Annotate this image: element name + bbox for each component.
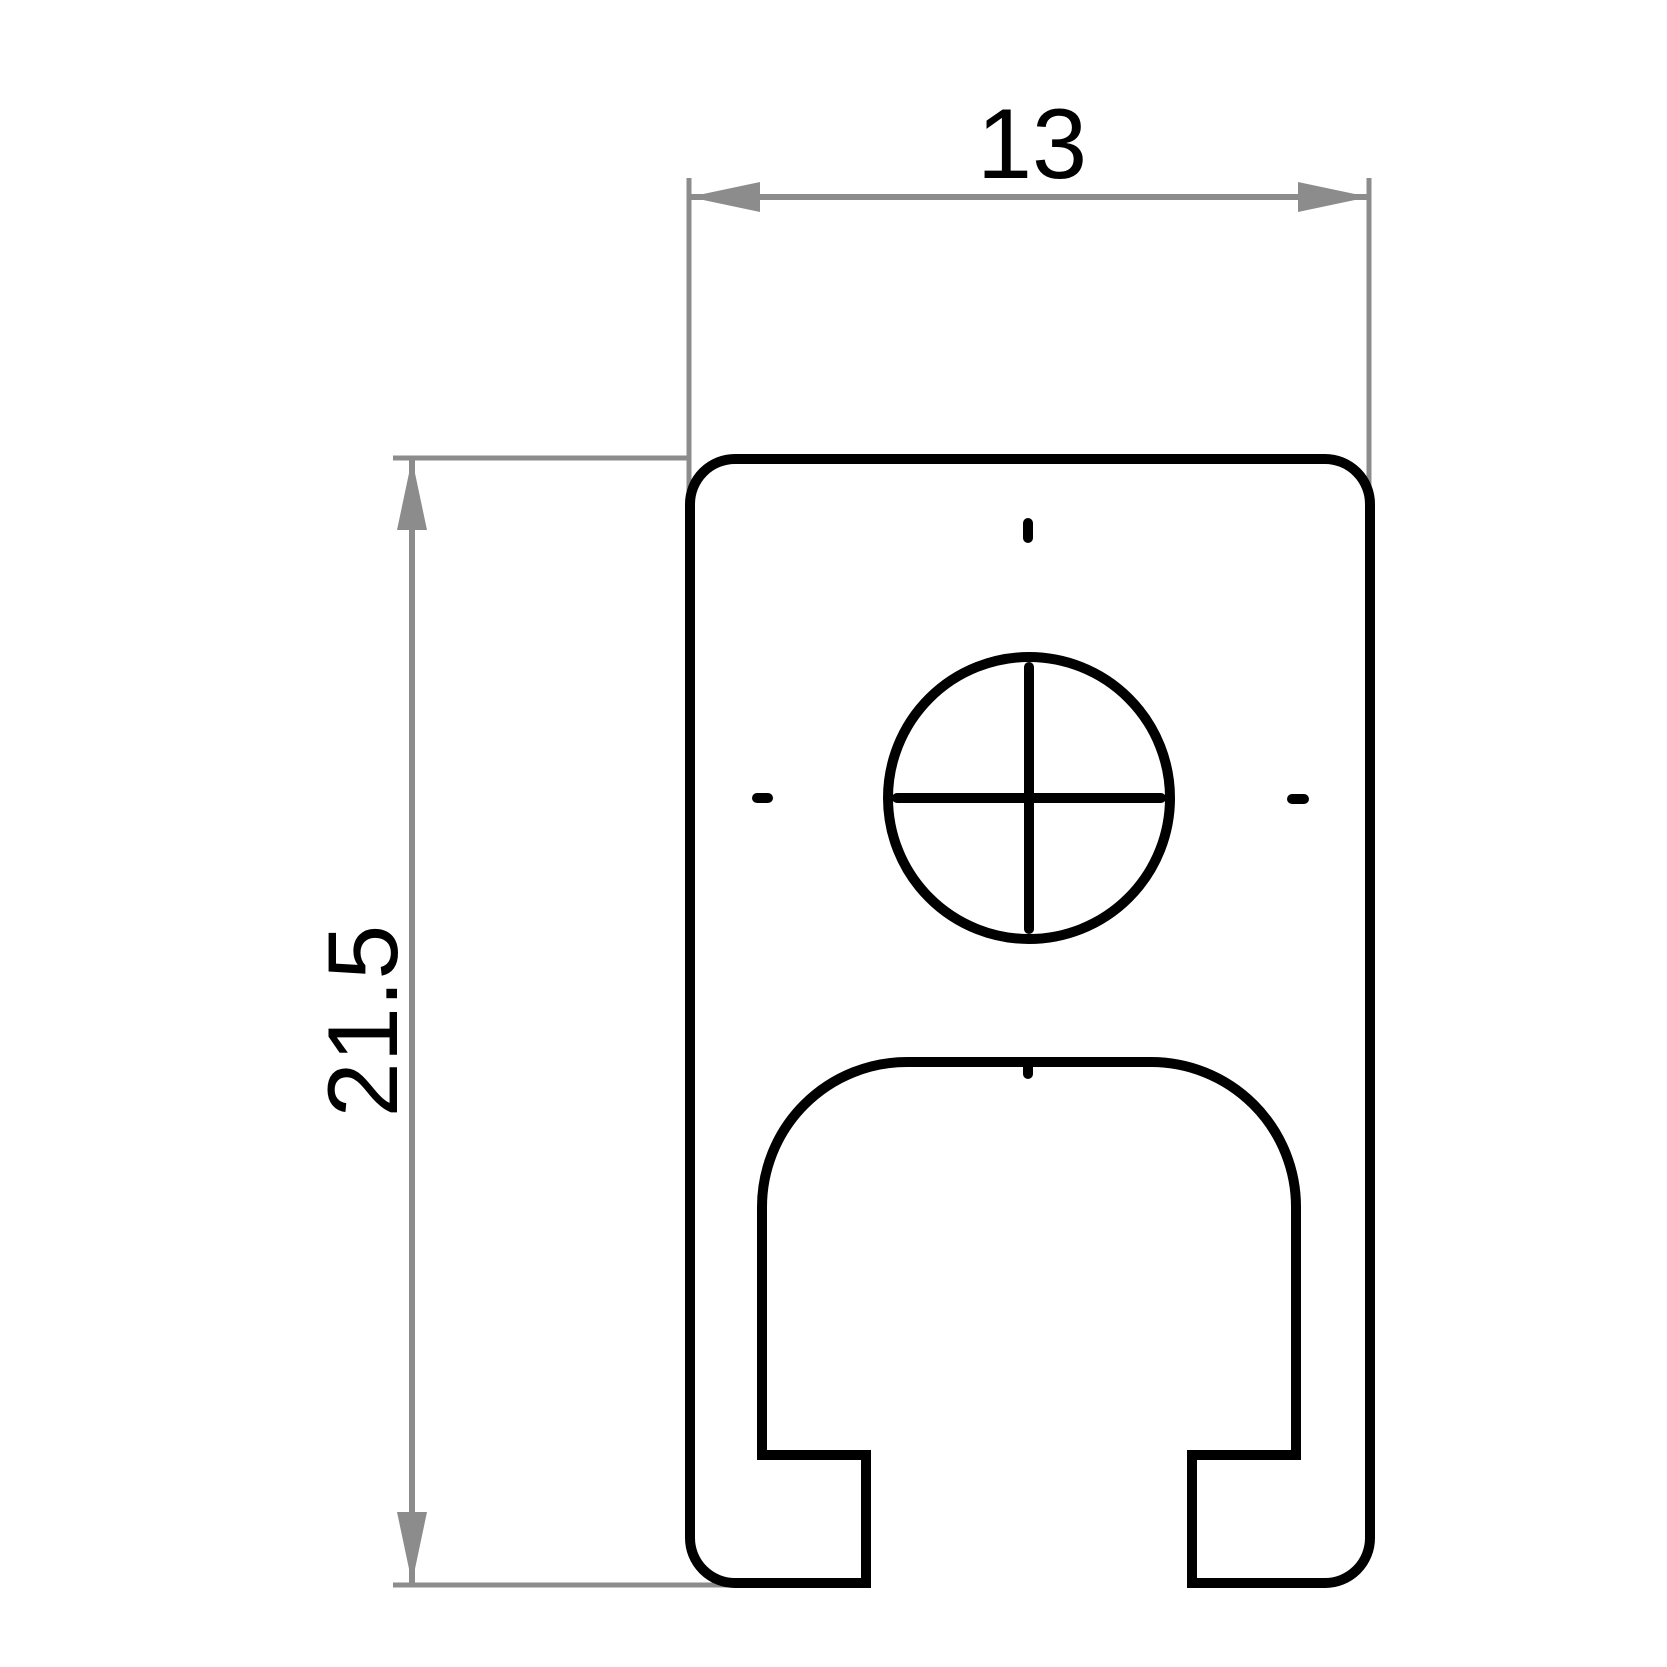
profile-dimension-drawing: 13 21.5	[0, 0, 1667, 1667]
width-dimension-label: 13	[977, 88, 1087, 199]
arrow-left-icon	[689, 182, 760, 212]
height-dimension: 21.5	[307, 458, 730, 1585]
arrow-right-icon	[1298, 182, 1369, 212]
height-dimension-label: 21.5	[307, 925, 418, 1118]
arrow-up-icon	[397, 459, 427, 530]
profile	[690, 459, 1370, 1583]
profile-outline	[690, 459, 1370, 1583]
arrow-down-icon	[397, 1512, 427, 1583]
width-dimension: 13	[689, 88, 1369, 495]
technical-drawing-canvas: 13 21.5	[0, 0, 1667, 1667]
